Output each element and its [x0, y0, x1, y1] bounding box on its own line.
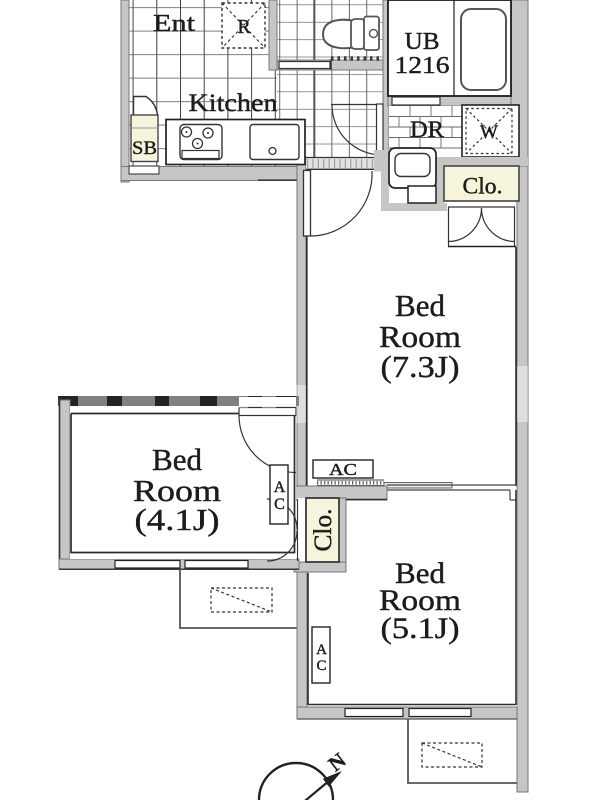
svg-text:DR: DR	[410, 117, 445, 142]
svg-text:C: C	[316, 658, 326, 674]
svg-text:Ent: Ent	[153, 11, 195, 37]
svg-text:(7.3J): (7.3J)	[381, 349, 460, 384]
svg-text:UB: UB	[405, 29, 440, 55]
svg-text:AC: AC	[329, 460, 357, 479]
svg-text:Clo.: Clo.	[310, 509, 337, 552]
svg-text:C: C	[274, 496, 285, 513]
svg-text:A: A	[274, 479, 286, 496]
svg-text:SB: SB	[132, 138, 157, 159]
svg-text:A: A	[316, 642, 327, 658]
svg-text:1216: 1216	[395, 53, 450, 79]
svg-text:R: R	[237, 16, 251, 38]
svg-text:(4.1J): (4.1J)	[135, 502, 220, 537]
svg-text:Bed: Bed	[152, 442, 202, 477]
svg-text:(5.1J): (5.1J)	[381, 612, 460, 645]
svg-text:Kitchen: Kitchen	[189, 90, 279, 117]
svg-text:Bed: Bed	[395, 288, 445, 323]
svg-text:W: W	[480, 122, 498, 143]
svg-text:Clo.: Clo.	[463, 174, 503, 199]
